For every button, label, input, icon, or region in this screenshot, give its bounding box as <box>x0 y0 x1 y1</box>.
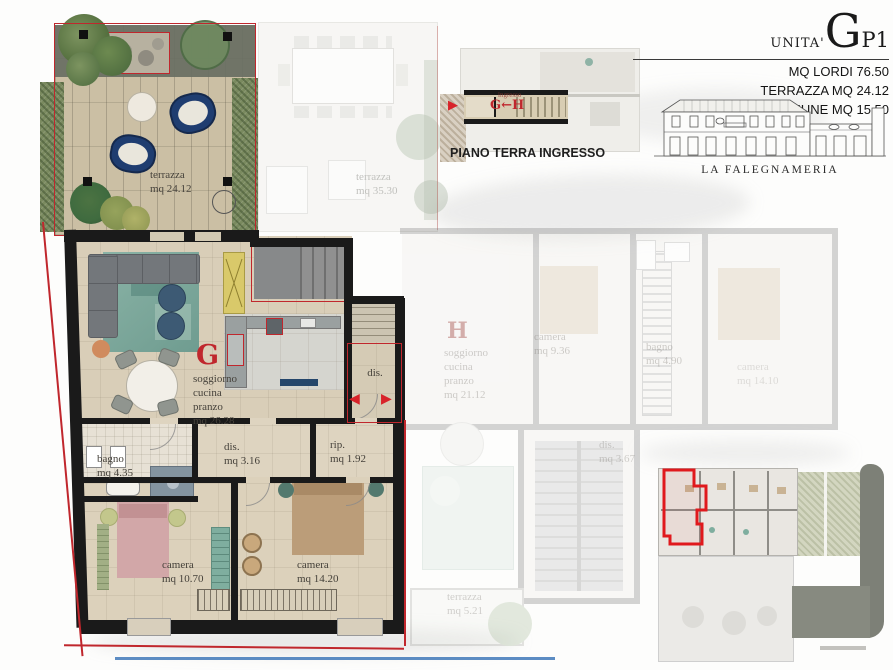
property-line <box>437 26 438 230</box>
bath-fixture <box>664 242 690 262</box>
interior-wall <box>231 480 238 626</box>
wall <box>344 238 353 304</box>
inset-detail <box>585 58 593 66</box>
key-plan-wall <box>733 471 735 555</box>
terrace-boundary-red <box>54 23 256 236</box>
unit-title: UNITA'GP1 <box>629 4 889 58</box>
french-window <box>337 618 383 636</box>
boundary-red-right <box>404 420 406 646</box>
french-window <box>127 618 171 636</box>
door-opening <box>346 477 370 483</box>
outdoor-dining-table <box>292 48 394 104</box>
door-opening <box>246 477 270 483</box>
key-plan <box>652 456 890 666</box>
room-label-bagno-h: bagno mq 4.90 <box>646 340 682 368</box>
kitchen-sink <box>300 318 316 328</box>
kitchen-stove <box>266 318 283 335</box>
unit-letter-h: H <box>447 318 468 344</box>
room-label-rip-g: rip. mq 1.92 <box>330 438 366 466</box>
key-plan-unit-outline <box>656 462 722 554</box>
room-label-soggiorno-h: soggiorno cucina pranzo mq 21.12 <box>444 346 488 402</box>
room-label-camera1-g: camera mq 10.70 <box>162 558 204 586</box>
stair-red-outline <box>251 244 349 302</box>
door-opening <box>150 418 178 424</box>
interior-wall <box>78 496 198 502</box>
chair <box>278 64 290 86</box>
room-label-entry-dis: dis. <box>358 366 392 380</box>
wall <box>832 228 838 428</box>
wall <box>400 228 838 234</box>
room-label-terrazza2-h: terrazza mq 5.21 <box>447 590 483 618</box>
pouf-teal <box>278 482 294 498</box>
key-plan-path <box>824 472 827 556</box>
pouf-tan <box>242 556 262 576</box>
header-line-mq-lordi: MQ LORDI 76.50 <box>629 63 889 82</box>
key-plan-dark-area <box>792 586 870 638</box>
entry-arrow-left-icon: ◀ <box>349 392 360 406</box>
stair-divider <box>577 441 581 591</box>
pouf-olive <box>168 509 186 527</box>
elevation-drawing <box>650 92 890 162</box>
sofa-chaise <box>88 254 118 338</box>
unit-letter-large: G <box>825 4 862 58</box>
wall <box>702 228 708 428</box>
wardrobe <box>197 589 230 611</box>
room-label-dis-h: dis. mq 3.67 <box>599 438 635 466</box>
window <box>195 232 221 241</box>
stair-treads-down <box>352 302 396 342</box>
pouf <box>157 312 185 340</box>
interior-wall <box>310 422 316 480</box>
title-rule <box>633 59 889 60</box>
wall <box>250 238 352 247</box>
chair <box>396 64 408 86</box>
inset-entry-arrow-icon: ▶ <box>448 99 458 112</box>
wall <box>533 228 539 428</box>
kitchen-appliance <box>227 334 244 366</box>
key-plan-tree <box>722 611 746 635</box>
key-plan-bed <box>749 485 758 492</box>
lounger <box>266 166 308 214</box>
unit-prefix: UNITA' <box>770 36 824 51</box>
entry-arrow-right-icon: ▶ <box>381 392 392 406</box>
pouf <box>158 284 186 312</box>
key-plan-tree <box>682 606 704 628</box>
bed <box>540 266 598 334</box>
interior-wall <box>192 422 198 480</box>
window <box>150 232 184 241</box>
pouf-orange <box>92 340 110 358</box>
key-plan-detail <box>743 529 749 535</box>
coffee-table <box>430 476 460 506</box>
key-plan-micro-caption <box>820 646 866 650</box>
room-label-camera2-h: camera mq 14.10 <box>737 360 779 388</box>
pillow <box>119 504 167 518</box>
room-label-terrazza-g: terrazza mq 24.12 <box>150 168 192 196</box>
key-plan-bed <box>777 487 786 494</box>
railing-line <box>115 657 555 660</box>
ground-floor-inset: ▶ ingresso G←H PIANO TERRA INGRESSO <box>440 42 645 164</box>
wardrobe <box>642 251 672 416</box>
chair-row <box>294 36 392 48</box>
inset-unit-link-label: G←H <box>490 98 524 113</box>
wardrobe <box>240 589 337 611</box>
room-label-camera2-g: camera mq 14.20 <box>297 558 339 586</box>
dining-table <box>440 422 484 466</box>
elevation-caption: LA FALEGNAMERIA <box>650 164 890 176</box>
key-plan-tree <box>757 606 777 626</box>
key-plan-courtyard <box>798 472 860 556</box>
kitchen-bench <box>280 379 318 386</box>
bath-fixture <box>636 240 656 270</box>
neighbor-terrace: terrazza mq 35.30 <box>258 22 438 232</box>
inset-furniture <box>590 102 620 126</box>
floorplan-sheet: terrazza mq 35.30 H soggiorno cucina pra… <box>0 0 893 670</box>
hedge <box>424 60 438 220</box>
inset-caption: PIANO TERRA INGRESSO <box>450 146 605 160</box>
plant <box>488 602 532 646</box>
unit-suffix: P1 <box>862 28 890 52</box>
bed <box>718 268 780 340</box>
runner-rug <box>97 524 109 590</box>
room-label-soggiorno-g: soggiorno cucina pranzo mq 26.28 <box>193 372 237 428</box>
cabinet-yellow <box>223 252 245 314</box>
door-opening <box>250 418 276 424</box>
pouf-teal <box>368 481 384 497</box>
cabinet-x-mark <box>224 253 244 313</box>
room-label-terrazza-h: terrazza mq 35.30 <box>356 170 398 198</box>
room-label-camera1-h: camera mq 9.36 <box>534 330 570 358</box>
key-plan-wall <box>767 471 769 555</box>
room-label-dis-g: dis. mq 3.16 <box>224 440 260 468</box>
shelf-teal <box>211 527 230 591</box>
chair-row <box>294 106 392 118</box>
room-label-bagno-g: bagno mq 4.35 <box>97 452 133 480</box>
corridor-red-outline <box>347 343 402 423</box>
building-elevation <box>650 92 890 162</box>
unit-letter-g: G <box>196 340 219 371</box>
pouf-tan <box>242 533 262 553</box>
